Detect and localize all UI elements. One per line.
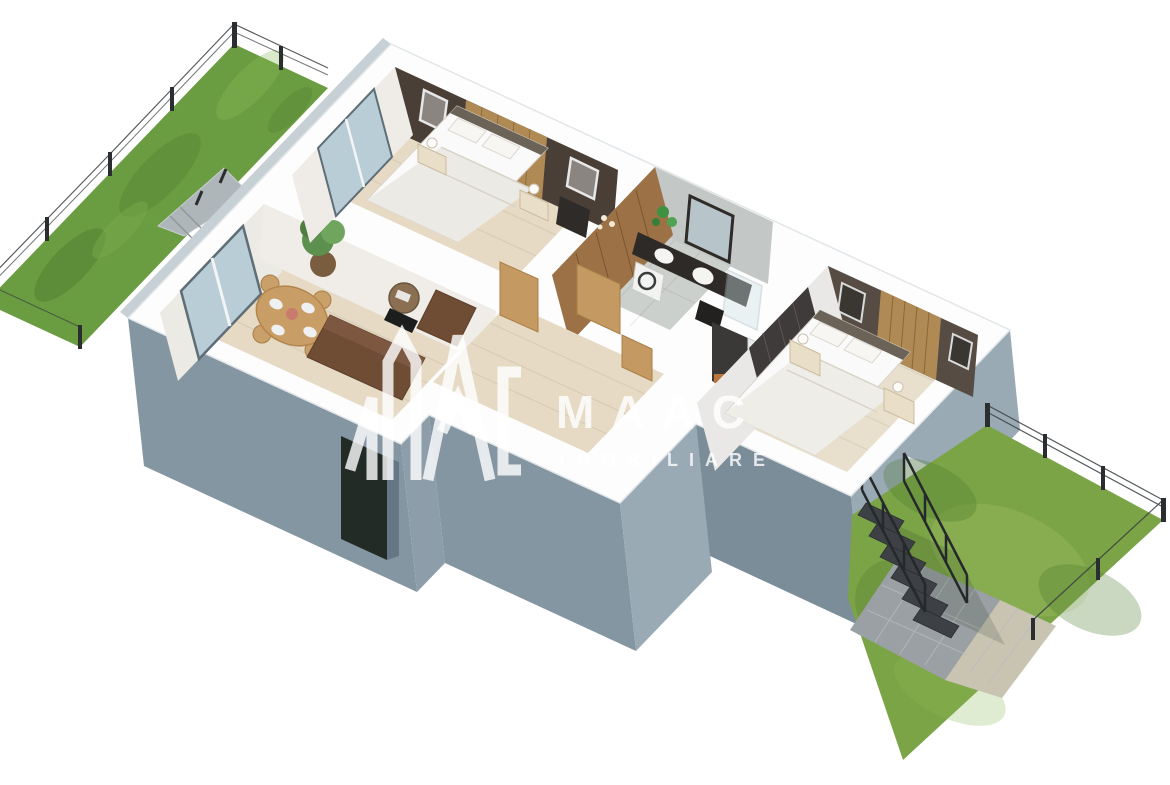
flower-centerpiece: [286, 308, 298, 320]
floorplan-render: MAAC IMOBILIARE: [0, 0, 1170, 785]
bed1-lamp-left: [427, 138, 437, 148]
entry-door: [341, 436, 387, 560]
scene-canvas: MAAC IMOBILIARE: [0, 0, 1170, 785]
bed2-lamp-right: [893, 382, 903, 392]
watermark-brand: MAAC: [556, 386, 762, 438]
bed1-lamp-right: [529, 184, 539, 194]
bed2-lamp-left: [798, 334, 808, 344]
watermark-tagline: IMOBILIARE: [560, 450, 776, 470]
